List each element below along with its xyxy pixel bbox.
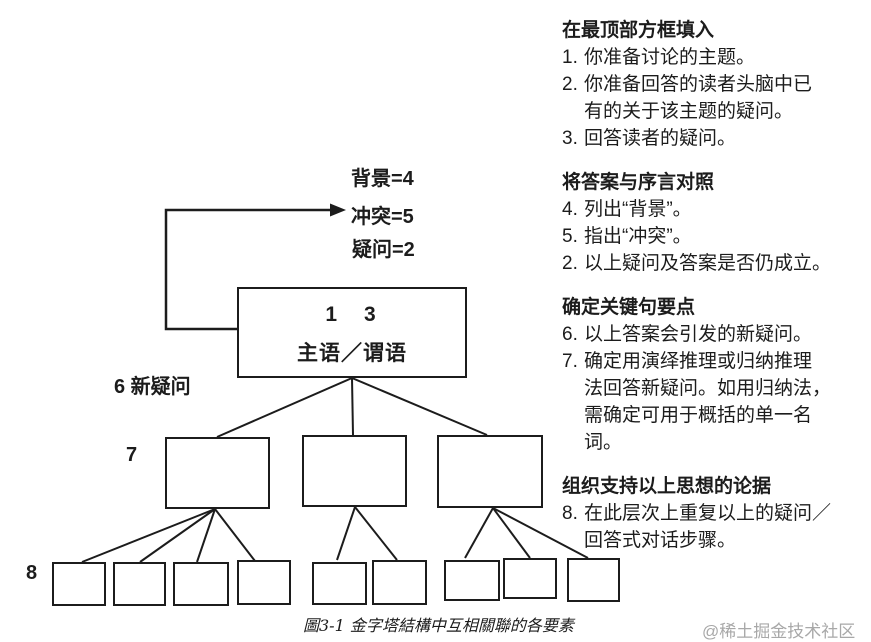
level8-box-2 bbox=[113, 562, 166, 606]
background-label: 背景=4 bbox=[351, 162, 414, 191]
right-arrow-icon bbox=[330, 204, 346, 217]
section-top-box-fill: 在最顶部方框填入 1. 你准备讨论的主题。 2. 你准备回答的读者头脑中已 有的… bbox=[562, 17, 864, 152]
instruction-item: 2. 以上疑问及答案是否仍成立。 bbox=[562, 250, 864, 277]
section-organize-support: 组织支持以上思想的论据 8. 在此层次上重复以上的疑问／ 回答式对话步骤。 bbox=[562, 473, 864, 554]
item-text: 你准备讨论的主题。 bbox=[584, 44, 755, 71]
top-box-numbers: 1 3 bbox=[325, 298, 378, 328]
item-number: 2. bbox=[562, 71, 584, 98]
item-number: 5. bbox=[562, 223, 584, 250]
instruction-item: 6. 以上答案会引发的新疑问。 bbox=[562, 321, 864, 348]
item-text: 以上疑问及答案是否仍成立。 bbox=[584, 250, 831, 277]
instruction-item: 8. 在此层次上重复以上的疑问／ 回答式对话步骤。 bbox=[562, 500, 864, 554]
instruction-item: 7. 确定用演绎推理或归纳推理 法回答新疑问。如用归纳法， 需确定可用于概括的单… bbox=[562, 348, 864, 456]
conflict-label: 冲突=5 bbox=[351, 200, 414, 229]
instruction-item: 4. 列出“背景”。 bbox=[562, 196, 864, 223]
item-text: 回答读者的疑问。 bbox=[584, 125, 736, 152]
level8-box-4 bbox=[237, 560, 291, 605]
level8-box-7 bbox=[444, 560, 500, 601]
item-text: 确定用演绎推理或归纳推理 法回答新疑问。如用归纳法， 需确定可用于概括的单一名 … bbox=[584, 348, 831, 456]
level8-box-8 bbox=[503, 558, 557, 599]
top-box-subject-predicate-label: 主语／谓语 bbox=[297, 337, 407, 367]
item-number: 7. bbox=[562, 348, 584, 375]
item-number: 1. bbox=[562, 44, 584, 71]
item-text: 你准备回答的读者头脑中已 有的关于该主题的疑问。 bbox=[584, 71, 812, 125]
section-compare-preface: 将答案与序言对照 4. 列出“背景”。 5. 指出“冲突”。 2. 以上疑问及答… bbox=[562, 169, 864, 277]
level7-middle-fan-lines bbox=[337, 507, 397, 560]
instruction-item: 2. 你准备回答的读者头脑中已 有的关于该主题的疑问。 bbox=[562, 71, 864, 125]
level7-box-3 bbox=[437, 435, 543, 508]
level8-box-3 bbox=[173, 562, 229, 606]
item-text: 以上答案会引发的新疑问。 bbox=[584, 321, 812, 348]
item-number: 6. bbox=[562, 321, 584, 348]
level7-step-label: 7 bbox=[126, 444, 137, 467]
instruction-column: 在最顶部方框填入 1. 你准备讨论的主题。 2. 你准备回答的读者头脑中已 有的… bbox=[562, 17, 864, 571]
level8-step-label: 8 bbox=[26, 562, 37, 585]
item-number: 2. bbox=[562, 250, 584, 277]
item-number: 8. bbox=[562, 500, 584, 527]
book-figure-page: 背景=4 冲突=5 疑问=2 1 3 主语／谓语 6 新疑问 7 8 在最顶部方… bbox=[0, 0, 871, 641]
section-heading: 组织支持以上思想的论据 bbox=[562, 473, 864, 500]
level8-box-1 bbox=[52, 562, 106, 606]
instruction-item: 1. 你准备讨论的主题。 bbox=[562, 44, 864, 71]
level8-box-5 bbox=[312, 562, 367, 605]
level8-box-6 bbox=[372, 560, 427, 605]
figure-caption: 圖3-1 金字塔結構中互相關聯的各要素 bbox=[303, 612, 574, 636]
level7-box-2 bbox=[302, 435, 407, 507]
item-text: 列出“背景”。 bbox=[584, 196, 692, 223]
level7-left-fan-lines bbox=[82, 509, 255, 562]
section-key-line-points: 确定关键句要点 6. 以上答案会引发的新疑问。 7. 确定用演绎推理或归纳推理 … bbox=[562, 294, 864, 456]
top-box: 1 3 主语／谓语 bbox=[237, 287, 467, 378]
item-number: 3. bbox=[562, 125, 584, 152]
level1-to-level7-lines bbox=[217, 378, 487, 437]
item-number: 4. bbox=[562, 196, 584, 223]
section-heading: 在最顶部方框填入 bbox=[562, 17, 864, 44]
section-heading: 确定关键句要点 bbox=[562, 294, 864, 321]
new-question-label: 6 新疑问 bbox=[114, 370, 191, 399]
item-text: 在此层次上重复以上的疑问／ 回答式对话步骤。 bbox=[584, 500, 831, 554]
question-label: 疑问=2 bbox=[352, 233, 415, 262]
section-heading: 将答案与序言对照 bbox=[562, 169, 864, 196]
level7-box-1 bbox=[165, 437, 270, 509]
instruction-item: 3. 回答读者的疑问。 bbox=[562, 125, 864, 152]
item-text: 指出“冲突”。 bbox=[584, 223, 692, 250]
watermark-text: @稀土掘金技术社区 bbox=[702, 617, 855, 642]
instruction-item: 5. 指出“冲突”。 bbox=[562, 223, 864, 250]
